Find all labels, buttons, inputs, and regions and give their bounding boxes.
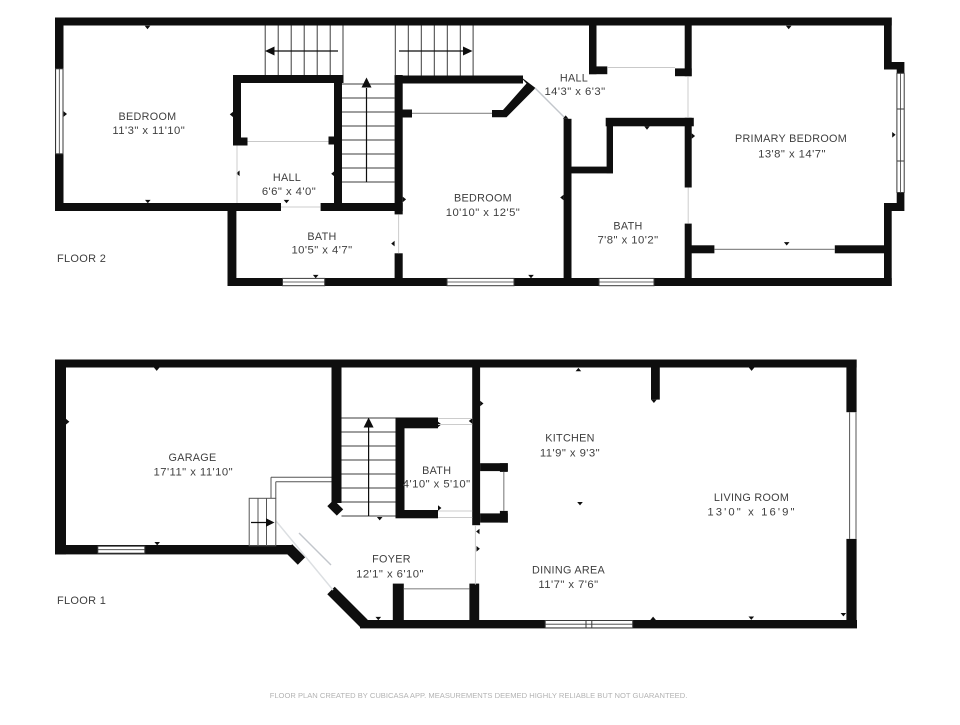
svg-text:11'3" x 11'10": 11'3" x 11'10" xyxy=(112,125,185,137)
svg-text:FLOOR 2: FLOOR 2 xyxy=(57,253,106,265)
svg-text:13'8" x 14'7": 13'8" x 14'7" xyxy=(758,149,826,161)
svg-text:11'9" x 9'3": 11'9" x 9'3" xyxy=(540,448,600,460)
svg-text:BEDROOM: BEDROOM xyxy=(119,111,177,123)
svg-text:13'0" x 16'9": 13'0" x 16'9" xyxy=(707,507,796,519)
svg-text:7'8" x 10'2": 7'8" x 10'2" xyxy=(597,235,658,247)
svg-text:FLOOR PLAN CREATED BY CUBICASA: FLOOR PLAN CREATED BY CUBICASA APP. MEAS… xyxy=(270,691,688,700)
svg-text:FOYER: FOYER xyxy=(372,554,411,566)
svg-text:HALL: HALL xyxy=(560,73,588,85)
svg-text:6'6" x 4'0": 6'6" x 4'0" xyxy=(262,186,316,198)
svg-text:4'10" x 5'10": 4'10" x 5'10" xyxy=(403,479,471,491)
svg-text:14'3" x 6'3": 14'3" x 6'3" xyxy=(544,86,605,98)
svg-text:GARAGE: GARAGE xyxy=(169,452,217,464)
svg-text:BATH: BATH xyxy=(613,221,642,233)
svg-text:KITCHEN: KITCHEN xyxy=(545,433,595,445)
svg-text:DINING AREA: DINING AREA xyxy=(532,565,605,577)
svg-text:PRIMARY BEDROOM: PRIMARY BEDROOM xyxy=(735,133,847,145)
svg-text:BATH: BATH xyxy=(422,465,451,477)
svg-text:BATH: BATH xyxy=(307,231,336,243)
svg-text:10'10" x 12'5": 10'10" x 12'5" xyxy=(446,207,521,219)
svg-text:BEDROOM: BEDROOM xyxy=(454,193,512,205)
svg-text:10'5" x 4'7": 10'5" x 4'7" xyxy=(291,245,352,257)
svg-text:FLOOR 1: FLOOR 1 xyxy=(57,595,106,607)
svg-text:12'1" x 6'10": 12'1" x 6'10" xyxy=(356,569,424,581)
svg-text:11'7" x 7'6": 11'7" x 7'6" xyxy=(538,579,598,591)
svg-text:LIVING ROOM: LIVING ROOM xyxy=(714,492,789,504)
svg-text:HALL: HALL xyxy=(273,172,301,184)
svg-text:17'11" x 11'10": 17'11" x 11'10" xyxy=(153,467,233,479)
